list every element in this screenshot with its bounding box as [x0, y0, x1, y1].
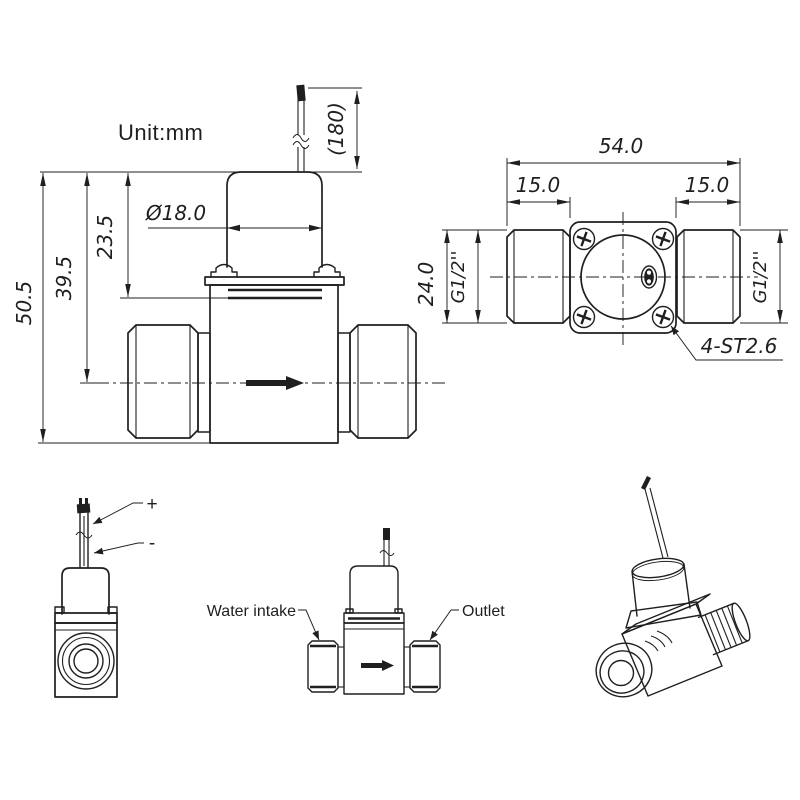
mounting-screw: [574, 229, 595, 250]
flow-direction-arrow: [361, 660, 394, 671]
dim-total-length: 54.0: [599, 134, 644, 158]
hex-nut-right: [350, 325, 416, 438]
lead-wire: [643, 477, 668, 558]
port-end-face: [58, 633, 114, 689]
isometric-view: [588, 477, 753, 705]
unit-label: Unit:mm: [118, 120, 203, 145]
wire-break-symbol: [293, 142, 309, 149]
lead-wire: [76, 498, 92, 568]
body-flange: [55, 613, 117, 623]
mounting-screw: [653, 229, 674, 250]
valve-body-front: [96, 265, 448, 444]
threaded-port-left: [507, 230, 570, 323]
body-block: [344, 623, 404, 694]
threaded-port-right: [677, 230, 740, 323]
dim-total-height: 50.5: [12, 281, 36, 326]
polarity-labels: + -: [93, 494, 158, 554]
lead-wire: [293, 85, 309, 172]
front-view: Unit:mm (180) Ø18.0: [12, 85, 448, 443]
neck-right: [338, 333, 350, 432]
dim-inlet-thread-length: 15.0: [516, 173, 561, 197]
wire-length-dimension: (180): [308, 88, 362, 169]
port-labels: Water intake Outlet: [207, 603, 505, 640]
neck-right: [404, 647, 410, 687]
mounting-ear-left: [211, 265, 237, 278]
positive-wire-label: +: [146, 494, 157, 515]
inlet-port-3d: [588, 631, 672, 705]
dim-wire-length: (180): [324, 102, 348, 156]
port-face-view: 54.0 15.0 15.0 24.0 G1/2'' G1/2'': [414, 134, 788, 360]
mounting-screw: [574, 307, 595, 328]
dim-height-to-body-top: 23.5: [93, 215, 117, 260]
solenoid-coil: [62, 568, 109, 614]
dim-height-to-centerline: 39.5: [52, 256, 76, 301]
flow-direction-view: Water intake Outlet: [207, 528, 505, 694]
body-front-face: [622, 604, 722, 696]
end-view: + -: [55, 494, 158, 697]
neck-left: [338, 647, 344, 687]
screw-note: 4-ST2.6: [671, 326, 783, 360]
outlet-port: [410, 641, 440, 692]
flow-direction-arrow: [246, 376, 304, 390]
neck-left: [198, 333, 210, 432]
mounting-screw: [653, 307, 674, 328]
dim-coil-diameter: Ø18.0: [145, 201, 206, 225]
negative-wire-label: -: [149, 533, 155, 554]
hex-nut-left: [128, 325, 198, 438]
body-block: [55, 623, 117, 697]
body-flange: [205, 277, 344, 285]
inlet-port: [308, 641, 338, 692]
solenoid-coil: [227, 172, 322, 267]
solenoid-valve-technical-drawing: Unit:mm (180) Ø18.0: [0, 0, 800, 800]
outlet-label: Outlet: [462, 603, 505, 620]
screw-spec-label: 4-ST2.6: [701, 334, 778, 358]
wire-break-symbol: [380, 551, 394, 556]
mounting-ear-right: [314, 265, 340, 278]
coil-diameter-dimension: Ø18.0: [145, 201, 322, 231]
body-block: [210, 285, 338, 443]
water-intake-label: Water intake: [207, 603, 296, 620]
wire-break-symbol: [293, 135, 309, 142]
solenoid-coil: [350, 566, 398, 613]
lead-wire: [380, 528, 394, 566]
dim-body-height: 24.0: [414, 262, 438, 307]
outlet-thread-spec-label: G1/2'': [750, 251, 771, 304]
inlet-thread-spec-label: G1/2'': [448, 251, 469, 304]
dim-outlet-thread-length: 15.0: [685, 173, 730, 197]
